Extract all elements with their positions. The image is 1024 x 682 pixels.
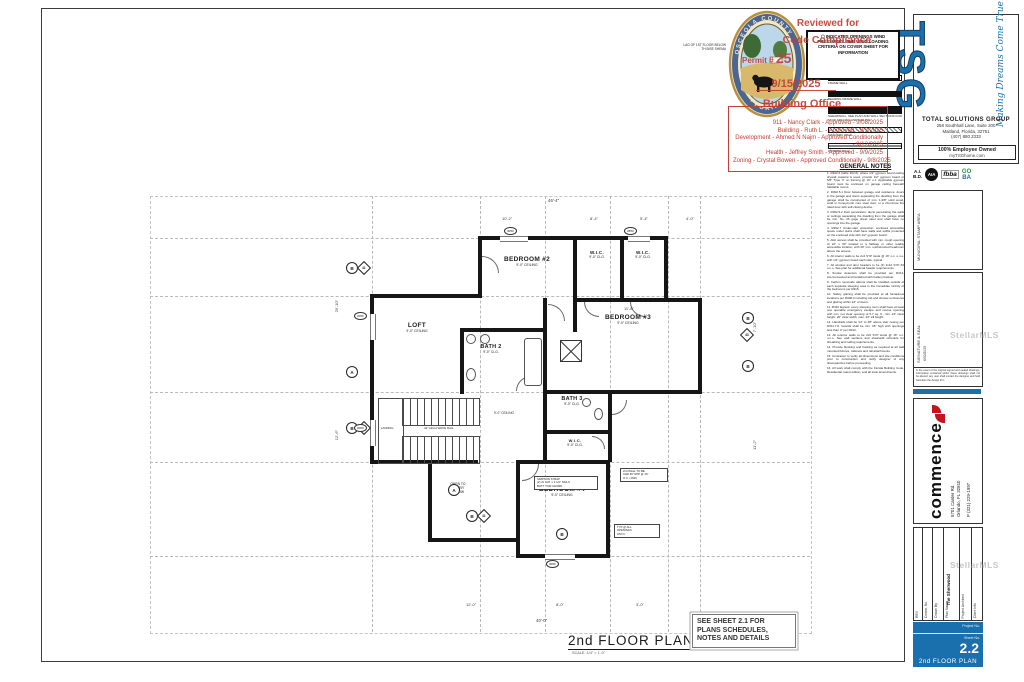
field-drawn-by: Drawn By [933, 528, 944, 620]
note: 15. Contractor to verify all dimensions … [827, 355, 904, 366]
marker-letter: B [470, 514, 473, 519]
toilet [466, 368, 476, 381]
shower-chase [560, 340, 582, 362]
signature-label: SIGNATURE & SEAL [916, 293, 921, 363]
approval-line: Building - Ruth L. - Approved - 9/3/2025 [733, 127, 883, 135]
see-sheet-line: SEE SHEET 2.1 FOR [697, 618, 791, 627]
tag-text: 2050 [357, 314, 364, 318]
field-label: Client Info [973, 603, 977, 618]
goba-logo: GO BA [962, 169, 971, 181]
dimension: 5'-4" [640, 216, 648, 221]
field-label: REV [915, 611, 919, 618]
landing-label: LANDING [381, 427, 393, 431]
stamp-line: Code Compliance [752, 34, 902, 46]
note: 6. All interior walls to be 2x4 SYP stud… [827, 255, 904, 262]
tag-text: 2850 [627, 229, 634, 233]
aibd-logo: A.I. B.D. [913, 170, 922, 180]
window [370, 314, 376, 340]
sheet-title: 2nd FLOOR PLAN [913, 658, 983, 665]
note-line: BOTT TOM CHORD [537, 485, 595, 488]
room-ceiling: 9'-0" CLG. [552, 402, 592, 406]
tsg-phone: (407) 880 2333 [916, 134, 1016, 140]
association-badges: A.I. B.D. AIA fbba GO BA [913, 168, 971, 181]
approvals-box: 911 - Nancy Clark - Approved - 9/08/2025… [728, 106, 888, 172]
note: 9. Carbon monoxide alarms shall be insta… [827, 281, 904, 292]
tsg-company-block: TOTAL SOLUTIONS GROUP 258 Southhall Lane… [916, 117, 1016, 140]
room-label-wic3: W.I.C. 9'-0" CLG. [558, 438, 592, 447]
hall-ceiling-note: 9'-0" CEILING [494, 412, 514, 416]
room-label-bath3: BATH 3 9'-0" CLG. [552, 396, 592, 406]
room-label-wic1: W.I.C. 9'-0" CLG. [580, 250, 614, 259]
floor-below-note: LAG OF 1ST FLOOR BELOW TH B/SE SHEMA [680, 44, 726, 52]
room-ceiling: 9'-0" CEILING [588, 321, 668, 325]
wall-note: 2x4 WALL TO BE CHD BY NPP @ 16" O.C. (JN… [620, 468, 668, 482]
aibd-line: B.D. [913, 175, 922, 180]
room-name: BEDROOM #3 [588, 314, 668, 321]
dimension: 29'-10" [334, 300, 339, 312]
bearing-wall-swatch [828, 91, 902, 97]
bathtub [524, 338, 542, 386]
stamp-date: 9/15/2025 [756, 78, 836, 91]
stamp-line: Reviewed for [768, 18, 888, 29]
room-name: BEDROOM #2 [492, 256, 562, 263]
note: 2. R302.5.1 Door between garage and resi… [827, 191, 904, 209]
room-ceiling: 9'-0" CEILING [492, 263, 562, 267]
commence-box: commence 5701 Carder Rd. Orlando, FL 328… [913, 398, 983, 524]
sink [480, 334, 490, 344]
stair-run-upper [402, 398, 480, 426]
tsg-logo-box: TSG Making Dreams Come True TOTAL SOLUTI… [913, 14, 1019, 164]
blue-divider-bar [913, 389, 981, 394]
marker-letter: B [746, 364, 749, 369]
window-tag: 3050 [504, 227, 517, 235]
aia-logo: AIA [925, 168, 938, 181]
floor-below-note-line2: TH B/SE SHEMA [680, 48, 726, 52]
watermark: StellarMLS [950, 560, 999, 570]
goba-line: BA [962, 175, 971, 181]
window-tag: 2050 [354, 312, 367, 320]
diamond-number: 41 [362, 266, 366, 270]
dimension: 8'-4" [590, 216, 598, 221]
dimension: 10'-2" [502, 216, 512, 221]
stair-landing: LANDING [378, 398, 404, 464]
shearwall-marker: B [742, 360, 754, 372]
note: 13. All exterior walls to be 2x6 SYP stu… [827, 334, 904, 345]
room-label-bath2: BATH 2 9'-0" CLG. [468, 344, 514, 354]
field-rev: REV [914, 528, 923, 620]
room-label-wic2: W.I.C. 9'-0" CLG. [626, 250, 660, 259]
sheet-number: 2.2 [960, 640, 979, 656]
room-label-bedroom2: BEDROOM #2 9'-0" CEILING [492, 256, 562, 267]
note: 1. R302.6 (table 302.6): where 1/2" gyps… [827, 172, 904, 190]
room-ceiling: 9'-0" CLG. [468, 350, 514, 354]
approval-line: Health - Jeffrey Smith - Approved - 9/9/… [733, 149, 883, 157]
commence-name: commence [926, 425, 946, 519]
see-sheet-note: SEE SHEET 2.1 FOR PLANS SCHEDULES, NOTES… [692, 614, 796, 648]
field-label: Drawn By [934, 603, 938, 618]
window-tag: 3050 [546, 560, 559, 568]
commence-address-line: 5701 Carder Rd. [950, 485, 955, 517]
municipal-stamp-box: MUNICIPAL STAMP AREA [913, 190, 983, 270]
field-label: Project Architect [961, 594, 965, 619]
note-line: O.C. (JND) [623, 477, 665, 480]
general-notes: GENERAL NOTES 1. R302.6 (table 302.6): w… [827, 164, 904, 376]
project-no-label: Project No. [962, 624, 980, 628]
commence-city-line: Orlando, FL 32810 [956, 481, 961, 517]
window [500, 236, 528, 242]
tag-text: 3050 [549, 562, 556, 566]
room-ceiling: 9'-0" CLG. [580, 255, 614, 259]
typ-openings-note: TYP @ ALL OPENINGS 2/M O. [614, 524, 660, 538]
field-client-info: Client Info [972, 528, 982, 620]
marker-letter: A [350, 370, 353, 375]
room-ceiling: 9'-0" CLG. [626, 255, 660, 259]
fbba-logo: fbba [941, 170, 959, 179]
see-sheet-line: NOTES AND DETAILS [697, 635, 791, 644]
window [545, 554, 575, 560]
dimension: 12'-0" [466, 602, 476, 607]
dimension: 7'-10" [752, 322, 757, 332]
note: 3. R302.5.2 Duct penetration: ducts pene… [827, 211, 904, 225]
plan-scale: SCALE: 1/4" = 1'-0" [572, 651, 605, 655]
rail-label: 42" HIGH WAVE RAIL [424, 427, 454, 431]
note: 12. Handrails shall be 34" to 38" above … [827, 321, 904, 332]
commence-logo-icon [932, 405, 945, 423]
shearwall-marker: A [448, 484, 460, 496]
sink [466, 334, 476, 344]
note: 5. Attic access shall be provided with m… [827, 239, 904, 253]
signature-date: 6/30/2025 [923, 301, 927, 361]
approval-line: Zoning - Crystal Bowen - Approved Condit… [733, 157, 883, 165]
tsg-tagline: Making Dreams Come True [996, 23, 1006, 127]
legend-item-label: FRAME WALL [828, 82, 902, 86]
note: 7. All window and door headers to be (2)… [827, 264, 904, 271]
watermark: StellarMLS [950, 330, 999, 340]
project-fields-table: REV Comm. No. Drawn By Plan Name The She… [913, 527, 983, 621]
dimension: 8'-0" [556, 602, 564, 607]
window [628, 236, 650, 242]
field-label: Comm. No. [924, 601, 928, 618]
room-ceiling: 9'-0" CEILING [524, 493, 600, 497]
permit-number: 25 [776, 50, 792, 66]
shearwall-marker: A [346, 366, 358, 378]
room-ceiling: 9'-0" CEILING [394, 329, 440, 333]
note-line: 2/M O. [617, 533, 657, 536]
window [370, 420, 376, 446]
dimension: 3'-0" [636, 602, 644, 607]
room-label-bedroom3: BEDROOM #3 9'-0" CEILING [588, 314, 668, 325]
sheet-number-box: Project No. Sheet No. 2.2 2nd FLOOR PLAN [913, 622, 983, 667]
strap-note: SIMPSON STRAP (2) 2x NAT. x 2 1/2" NAILS… [534, 476, 598, 490]
tag-text: 3050 [507, 229, 514, 233]
marker-letter: B [350, 266, 353, 271]
diamond-number: 41 [482, 514, 486, 518]
field-project-architect: Project Architect [960, 528, 972, 620]
marker-letter: B [560, 532, 563, 537]
employee-owned-box: 100% Employee Owned myTSGhome.com [918, 145, 1016, 160]
marker-letter: A [452, 488, 455, 493]
dimension: 11'-8" [624, 306, 634, 311]
room-label-loft: LOFT 9'-0" CEILING [394, 322, 440, 333]
goba-line: GO [962, 169, 971, 175]
diamond-number: 43 [745, 333, 749, 337]
dimension: 40'-0" [536, 618, 547, 623]
plan-title: 2nd FLOOR PLAN [568, 633, 694, 650]
field-comm-no: Comm. No. [923, 528, 934, 620]
plan-name-value: The Sherwood [946, 574, 951, 606]
note: 11. R310 Egress: every sleeping room sha… [827, 306, 904, 320]
dimension: 12'-6" [334, 430, 339, 440]
shearwall-marker: B [556, 528, 568, 540]
room-name: LOFT [394, 322, 440, 329]
window-tag: 2050 [354, 424, 367, 432]
toilet [594, 408, 603, 420]
commence-address: 5701 Carder Rd. Orlando, FL 32810 [950, 409, 962, 517]
window-tag: 2850 [624, 227, 637, 235]
dimension: 11'-2" [752, 440, 757, 450]
approval-line: 911 - Nancy Clark - Approved - 9/08/2025 [733, 119, 883, 127]
commence-phone: P (321) 229-1997 [966, 409, 972, 517]
municipal-stamp-label: MUNICIPAL STAMP AREA [916, 199, 921, 261]
see-sheet-line: PLANS SCHEDULES, [697, 627, 791, 636]
note: 8. Smoke detectors shall be provided per… [827, 272, 904, 279]
tag-text: 2050 [357, 426, 364, 430]
divider-line [913, 633, 983, 634]
permit-label: Permit # [742, 56, 774, 65]
dimension: 4'-0" [686, 216, 694, 221]
dimension: 46'-4" [548, 198, 559, 203]
approval-line: Development - Ahmed N Najm - Approved Co… [733, 135, 883, 149]
signature-disclaimer: In the event of the original signed and … [914, 367, 982, 386]
stair-run-lower [402, 436, 480, 464]
note: 10. Safety glazing shall be provided at … [827, 293, 904, 304]
note: 4. R302.7 Under-stair protection: enclos… [827, 227, 904, 238]
room-ceiling: 9'-0" CLG. [558, 443, 592, 447]
note: 16. All work shall comply with the Flori… [827, 367, 904, 374]
tsg-website: myTSGhome.com [919, 153, 1015, 158]
marker-letter: B [746, 316, 749, 321]
field-plan-name: Plan Name The Sherwood [944, 528, 960, 620]
note: 14. Provide blocking and backing as requ… [827, 346, 904, 353]
